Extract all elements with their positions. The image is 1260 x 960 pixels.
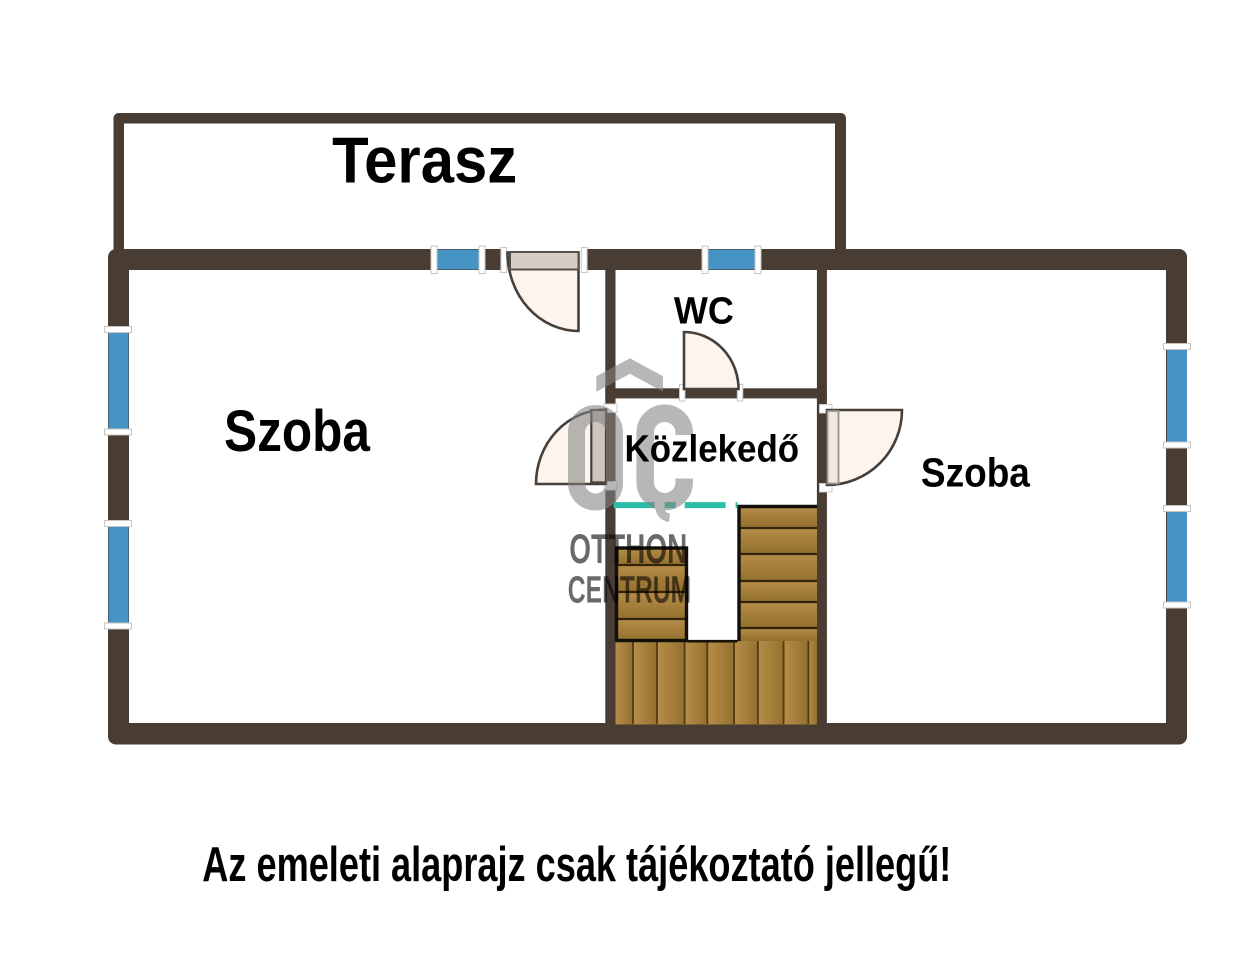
svg-text:Az emeleti alaprajz csak tájék: Az emeleti alaprajz csak tájékoztató jel… [202, 838, 951, 892]
svg-text:Terasz: Terasz [332, 124, 517, 197]
svg-text:Szoba: Szoba [224, 399, 371, 464]
svg-text:WC: WC [674, 290, 734, 333]
svg-text:CENTRUM: CENTRUM [568, 570, 691, 612]
svg-text:Szoba: Szoba [921, 449, 1031, 495]
svg-text:Közlekedő: Közlekedő [625, 427, 800, 469]
svg-text:OTTHON: OTTHON [569, 525, 687, 572]
